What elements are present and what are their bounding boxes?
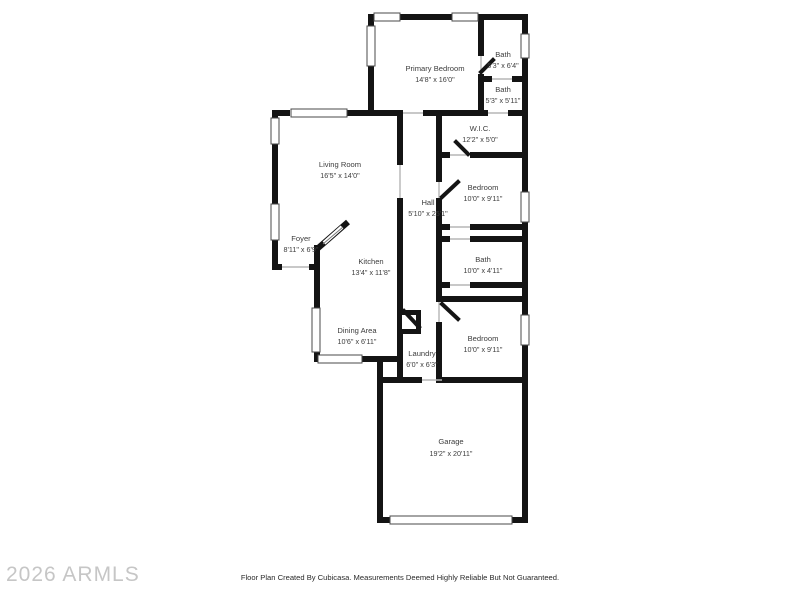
room-label-bedroom-2: Bedroom	[468, 334, 499, 343]
room-dims-laundry: 6'0" x 6'3"	[406, 360, 438, 369]
room-dims-bedroom-2: 10'0" x 9'11"	[464, 345, 503, 354]
room-dims-dining-area: 10'6" x 6'11"	[338, 337, 377, 346]
room-label-bedroom-1: Bedroom	[468, 183, 499, 192]
room-dims-hall: 5'10" x 25'1"	[408, 209, 448, 218]
room-dims-bedroom-1: 10'0" x 9'11"	[464, 194, 503, 203]
room-dims-living-room: 16'5" x 14'0"	[320, 171, 360, 180]
room-label-bath-1: Bath	[495, 50, 511, 59]
room-label-wic: W.I.C.	[470, 124, 491, 133]
floor-plan-image: Primary Bedroom 14'8" x 16'0" Bath 5'3" …	[0, 0, 800, 600]
room-label-bath-3: Bath	[475, 255, 491, 264]
disclaimer-text: Floor Plan Created By Cubicasa. Measurem…	[241, 573, 559, 582]
room-label-primary-bedroom: Primary Bedroom	[405, 64, 464, 73]
room-dims-foyer: 8'11" x 6'9"	[284, 245, 319, 254]
room-dims-primary-bedroom: 14'8" x 16'0"	[415, 75, 455, 84]
room-dims-bath-2: 5'3" x 5'11"	[486, 96, 521, 105]
room-label-hall: Hall	[421, 198, 434, 207]
floor-plan-page: Primary Bedroom 14'8" x 16'0" Bath 5'3" …	[0, 0, 800, 600]
room-label-foyer: Foyer	[291, 234, 311, 243]
room-dims-garage: 19'2" x 20'11"	[430, 449, 473, 458]
armls-watermark: 2026 ARMLS	[6, 563, 140, 586]
room-dims-kitchen: 13'4" x 11'8"	[352, 268, 391, 277]
room-label-dining-area: Dining Area	[337, 326, 377, 335]
room-dims-wic: 12'2" x 5'0"	[462, 135, 498, 144]
room-label-laundry: Laundry	[408, 349, 436, 358]
room-label-garage: Garage	[438, 437, 463, 446]
room-label-kitchen: Kitchen	[358, 257, 383, 266]
room-dims-bath-1: 5'3" x 6'4"	[487, 61, 519, 70]
room-label-living-room: Living Room	[319, 160, 361, 169]
room-label-bath-2: Bath	[495, 85, 511, 94]
room-dims-bath-3: 10'0" x 4'11"	[464, 266, 503, 275]
garage-door	[390, 516, 512, 524]
